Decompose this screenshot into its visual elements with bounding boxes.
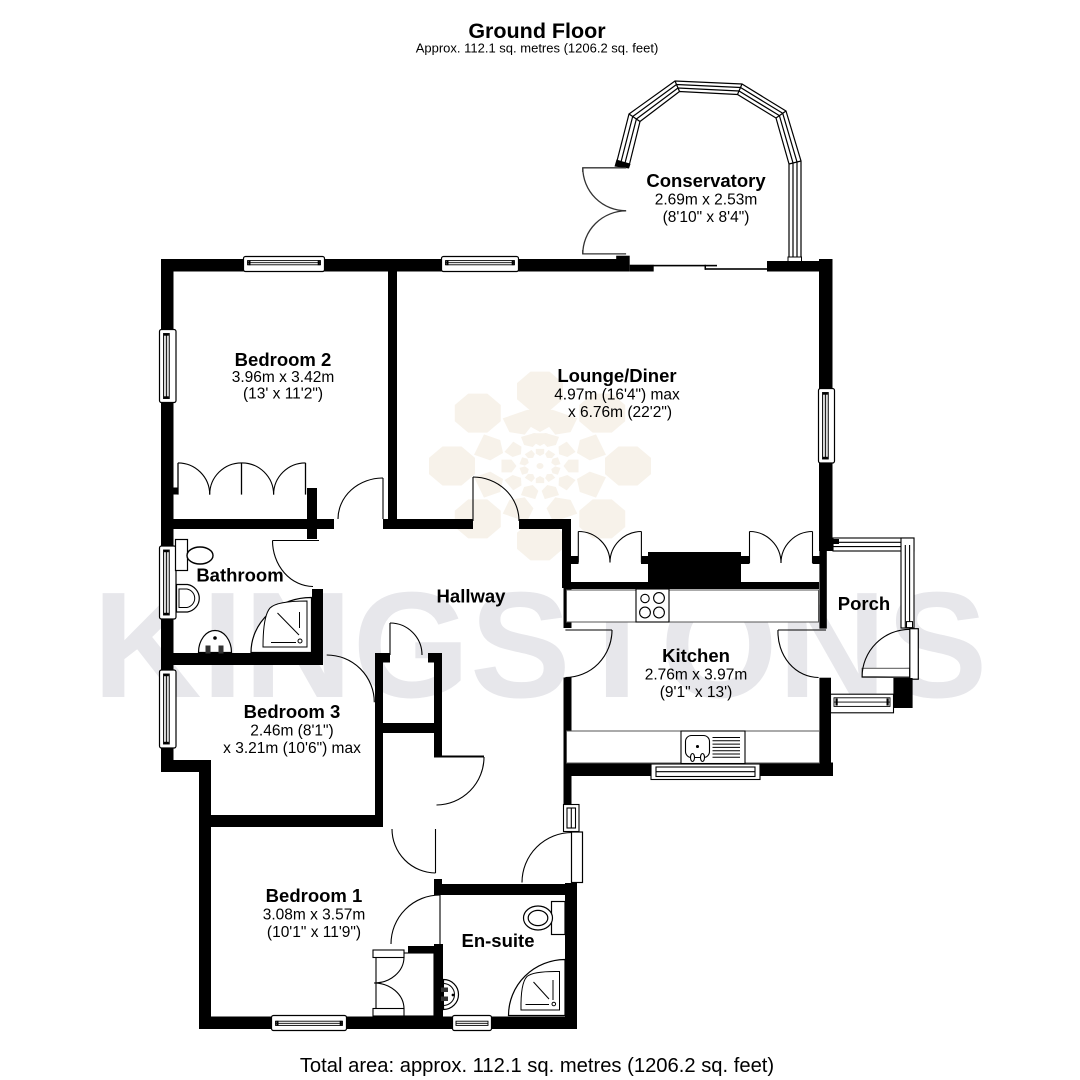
svg-text:(13' x 11'2"): (13' x 11'2") (243, 386, 323, 403)
svg-text:Porch: Porch (838, 593, 890, 614)
svg-text:Bedroom 1: Bedroom 1 (266, 885, 363, 906)
svg-text:Hallway: Hallway (437, 586, 507, 607)
svg-text:2.46m (8'1"): 2.46m (8'1") (250, 723, 333, 740)
svg-text:Approx. 112.1 sq. metres (1206: Approx. 112.1 sq. metres (1206.2 sq. fee… (416, 41, 659, 56)
svg-text:x 6.76m (22'2"): x 6.76m (22'2") (568, 404, 672, 421)
svg-text:Bathroom: Bathroom (196, 565, 283, 586)
svg-text:Conservatory: Conservatory (646, 170, 766, 191)
svg-text:Ground Floor: Ground Floor (468, 19, 606, 43)
svg-text:Kitchen: Kitchen (662, 645, 730, 666)
svg-text:2.76m x 3.97m: 2.76m x 3.97m (645, 667, 748, 684)
svg-text:2.69m x 2.53m: 2.69m x 2.53m (655, 192, 758, 209)
svg-text:3.96m x 3.42m: 3.96m x 3.42m (232, 369, 335, 386)
svg-text:(8'10" x 8'4"): (8'10" x 8'4") (663, 209, 750, 226)
svg-text:(10'1" x 11'9"): (10'1" x 11'9") (267, 924, 361, 941)
svg-text:4.97m (16'4") max: 4.97m (16'4") max (554, 387, 680, 404)
svg-text:Lounge/Diner: Lounge/Diner (557, 365, 676, 386)
svg-text:Total area: approx. 112.1 sq.: Total area: approx. 112.1 sq. metres (12… (300, 1055, 774, 1077)
svg-text:En-suite: En-suite (462, 930, 535, 951)
svg-text:Bedroom 2: Bedroom 2 (235, 349, 332, 370)
svg-text:x 3.21m (10'6") max: x 3.21m (10'6") max (223, 740, 361, 757)
svg-text:3.08m x 3.57m: 3.08m x 3.57m (263, 907, 366, 924)
svg-text:(9'1" x 13'): (9'1" x 13') (660, 684, 733, 701)
svg-text:Bedroom 3: Bedroom 3 (244, 701, 341, 722)
